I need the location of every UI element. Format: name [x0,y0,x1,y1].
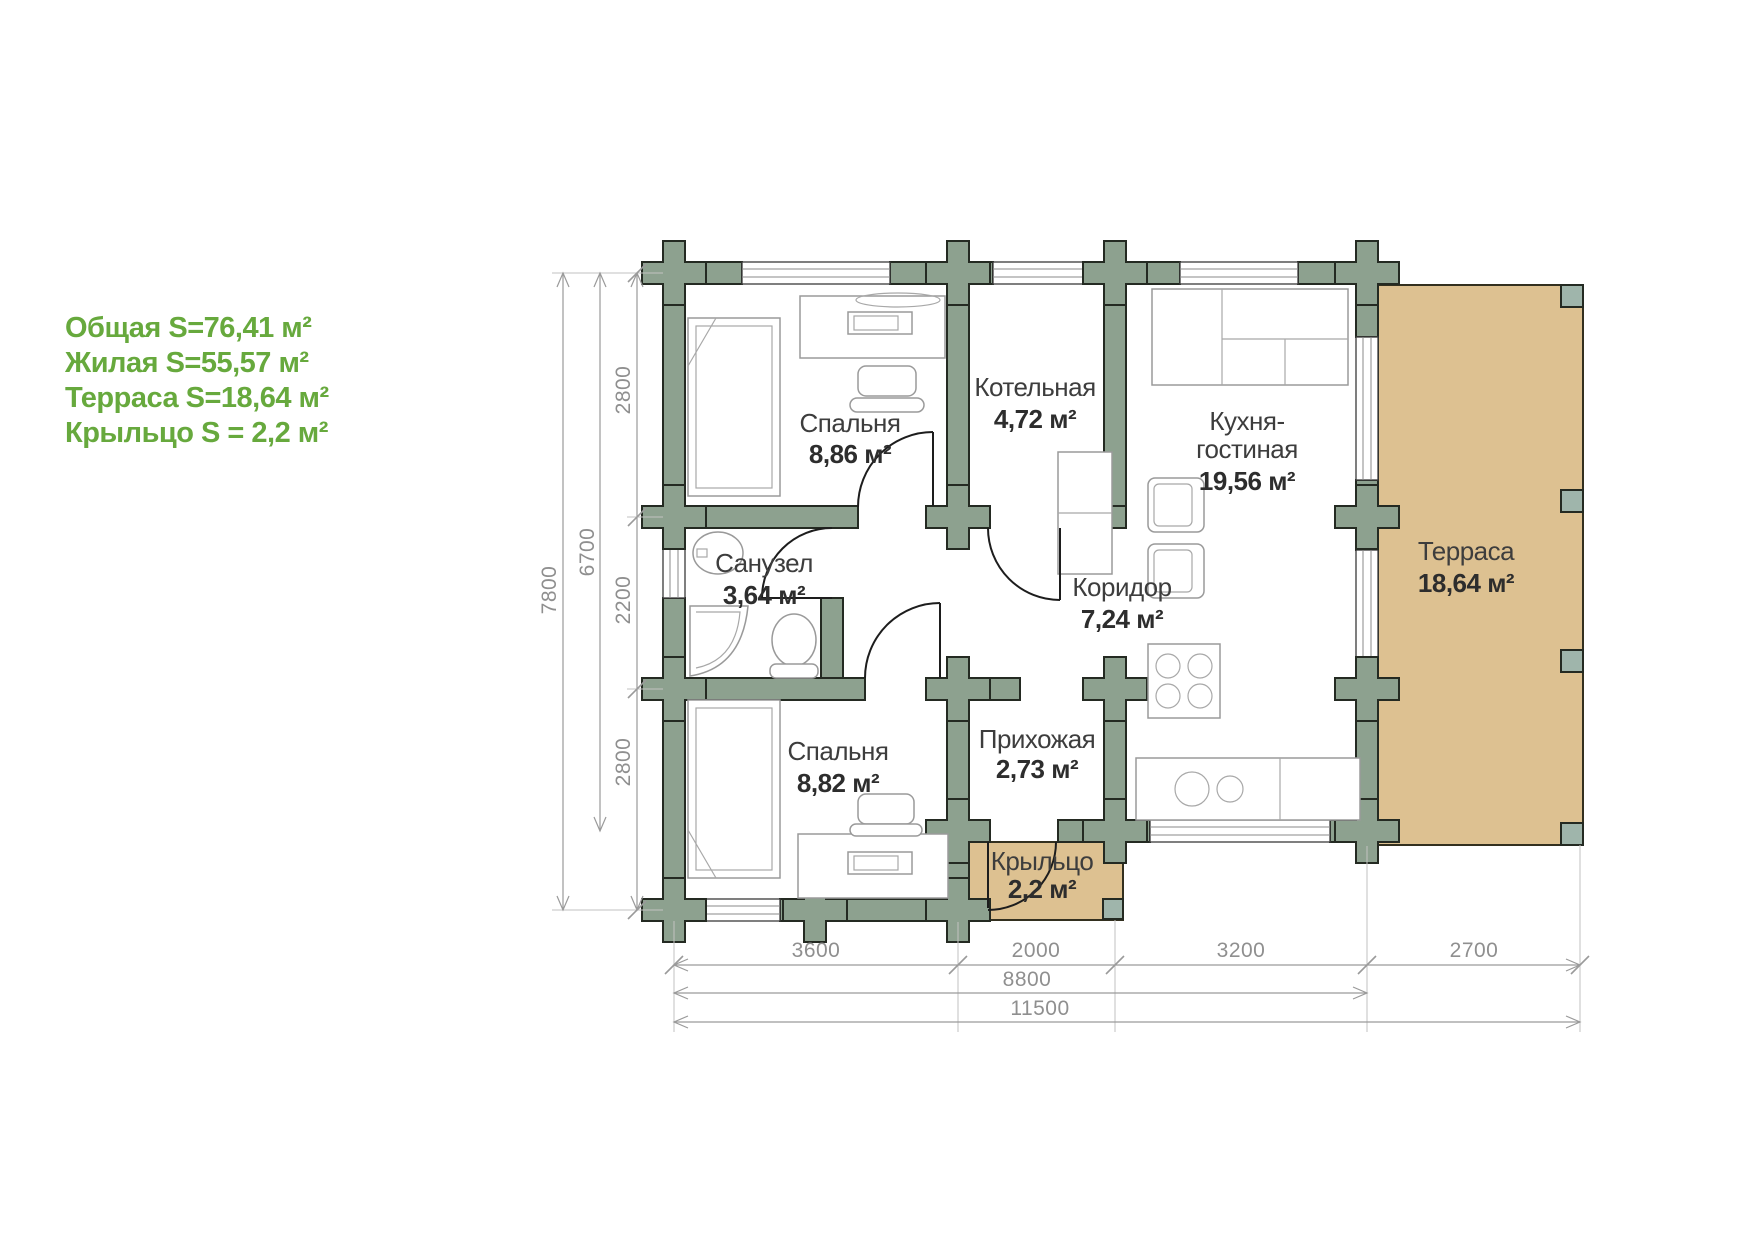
room-name: Санузел [715,548,813,578]
window-kitchen-top [1180,262,1298,284]
toilet [770,614,818,678]
room-label-kitchen-living: Кухня- гостиная 19,56 м² [1196,406,1298,496]
room-name: Крыльцо [991,846,1094,876]
room-area: 4,72 м² [994,404,1077,434]
terrace-post [1561,823,1583,845]
shower [690,606,748,676]
legend-terrace-area: Терраса S=18,64 м² [65,382,329,414]
stove [1148,644,1220,718]
sofa [1152,289,1348,385]
dim-vertical-seg-1: 2800 [612,366,635,415]
room-name: Терраса [1418,536,1515,566]
legend-porch-area: Крыльцо S = 2,2 м² [65,417,329,449]
room-area: 7,24 м² [1081,604,1164,634]
legend-total-area: Общая S=76,41 м² [65,312,312,344]
door-boiler-room [988,528,1060,600]
room-name: Коридор [1072,572,1171,602]
dim-vertical-seg-2: 2200 [612,576,635,625]
area-legend: Общая S=76,41 м² Жилая S=55,57 м² Террас… [64,312,329,449]
armchair [1148,478,1204,532]
room-area: 18,64 м² [1418,568,1515,598]
room-label-boiler-room: Котельная 4,72 м² [974,372,1095,434]
room-area: 8,86 м² [809,439,892,469]
room-name: Спальня [800,408,901,438]
room-area: 19,56 м² [1199,466,1296,496]
dim-horizontal-seg-2: 2000 [1012,939,1061,962]
bed [688,700,780,878]
kitchen-counter [1136,758,1360,820]
kitchen-island [1058,452,1112,574]
terrace-post [1561,490,1583,512]
room-name: гостиная [1196,434,1298,464]
door-bedroom-2 [865,603,940,678]
room-name: Спальня [788,736,889,766]
office-chair [850,366,924,412]
office-chair [850,794,922,836]
room-area: 2,2 м² [1008,874,1077,904]
room-area: 3,64 м² [723,580,806,610]
window-kitchen-bottom [1150,820,1330,842]
dim-horizontal-seg-4: 2700 [1450,939,1499,962]
dim-horizontal-seg-1: 3600 [792,939,841,962]
dim-vertical-main: 6700 [576,528,599,577]
room-label-hallway: Прихожая 2,73 м² [979,724,1095,784]
terrace-post [1561,285,1583,307]
dim-horizontal-seg-3: 3200 [1217,939,1266,962]
desk [800,293,945,358]
room-name: Котельная [974,372,1095,402]
room-name: Прихожая [979,724,1095,754]
window-bedroom1-top [742,262,890,284]
room-area: 2,73 м² [996,754,1079,784]
room-label-bedroom-1: Спальня 8,86 м² [800,408,901,469]
porch-post [1103,899,1123,919]
floor-plan-page: Общая S=76,41 м² Жилая S=55,57 м² Террас… [0,0,1754,1241]
terrace-post [1561,650,1583,672]
legend-living-area: Жилая S=55,57 м² [64,347,309,379]
dim-horizontal-main: 8800 [1003,968,1052,991]
desk [798,834,948,898]
room-label-bedroom-2: Спальня 8,82 м² [788,736,889,798]
room-area: 8,82 м² [797,768,880,798]
bed [688,318,780,496]
window-kitchen-right-upper [1356,337,1378,480]
dim-horizontal-total: 11500 [1010,997,1069,1020]
dim-vertical-seg-3: 2800 [612,738,635,787]
room-label-corridor: Коридор 7,24 м² [1072,572,1171,634]
floor-plan-drawing: Общая S=76,41 м² Жилая S=55,57 м² Террас… [0,0,1754,1241]
dim-vertical-total: 7800 [538,566,561,615]
room-name: Кухня- [1209,406,1284,436]
